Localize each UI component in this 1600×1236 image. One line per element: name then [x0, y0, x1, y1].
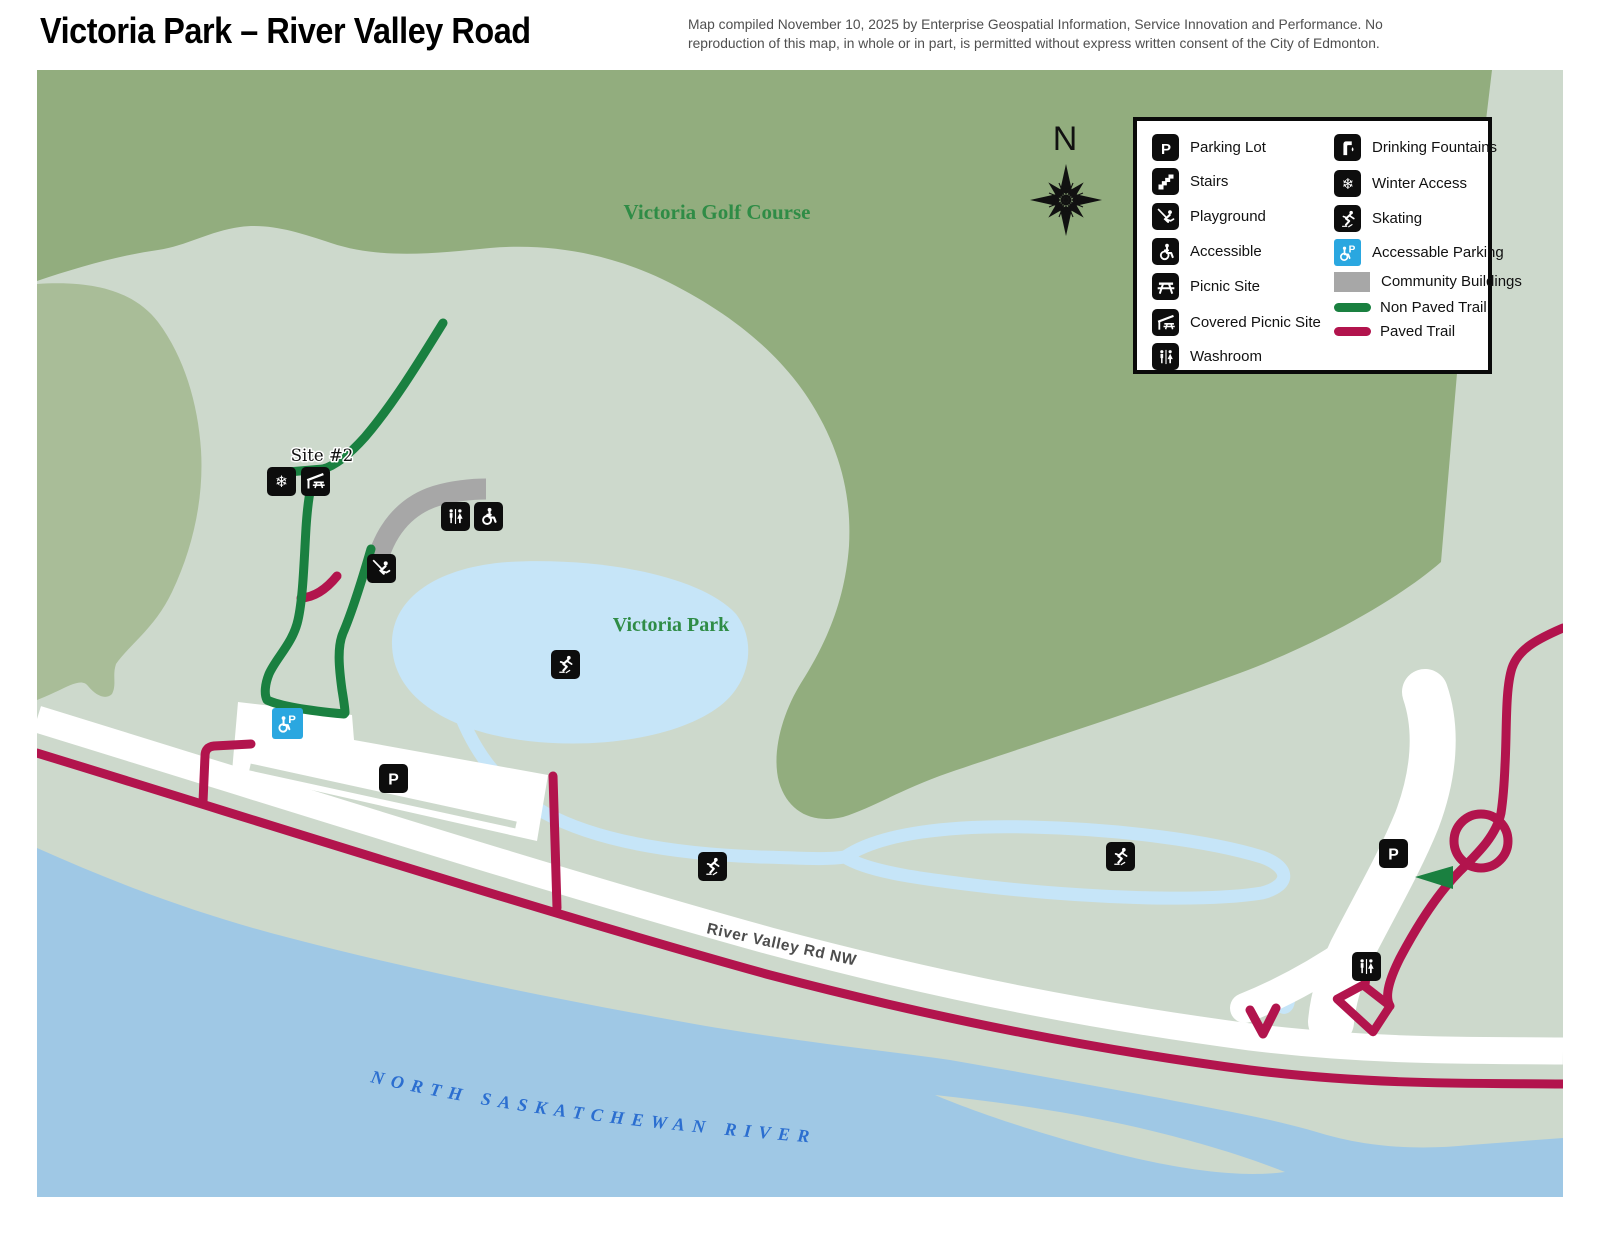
legend-item-picnic-site: Picnic Site: [1152, 273, 1260, 300]
park-label: Victoria Park: [613, 614, 730, 636]
skating-icon: [1106, 842, 1135, 871]
accessible-parking-icon: [272, 708, 303, 739]
legend-label: Accessible: [1190, 243, 1262, 260]
washroom-icon: [1352, 952, 1381, 981]
accessible-parking-icon: [1334, 239, 1361, 266]
legend-label: Accessable Parking: [1372, 244, 1504, 261]
non-paved-trail-swatch: [1334, 303, 1371, 312]
legend-label: Paved Trail: [1380, 323, 1455, 340]
legend-label: Covered Picnic Site: [1190, 314, 1321, 331]
legend-label: Stairs: [1190, 173, 1228, 190]
legend-item-drinking-fountains: Drinking Fountains: [1334, 134, 1497, 161]
stairs-icon: [1152, 168, 1179, 195]
covered-picnic-site-icon: [1152, 309, 1179, 336]
playground-icon: [1152, 203, 1179, 230]
winter-access-icon: [267, 467, 296, 496]
playground-icon: [367, 554, 396, 583]
legend-label: Parking Lot: [1190, 139, 1266, 156]
winter-access-icon: [1334, 170, 1361, 197]
drinking-fountain-icon: [1334, 134, 1361, 161]
legend-item-community-buildings: Community Buildings: [1334, 272, 1522, 292]
skating-icon: [698, 852, 727, 881]
skating-icon: [551, 650, 580, 679]
parking-lot-icon: [379, 764, 408, 793]
attribution-line-2: reproduction of this map, in whole or in…: [688, 35, 1568, 54]
legend-item-skating: Skating: [1334, 205, 1422, 232]
legend-label: Skating: [1372, 210, 1422, 227]
map-attribution: Map compiled November 10, 2025 by Enterp…: [688, 16, 1568, 53]
attribution-line-1: Map compiled November 10, 2025 by Enterp…: [688, 16, 1568, 35]
legend-label: Washroom: [1190, 348, 1262, 365]
covered-picnic-site-icon: [301, 467, 330, 496]
legend-label: Winter Access: [1372, 175, 1467, 192]
community-buildings-swatch: [1334, 272, 1370, 292]
legend-item-washroom: Washroom: [1152, 343, 1262, 370]
site-2-label: Site #2: [291, 446, 354, 465]
map-legend: Parking Lot Stairs Playground Accessible…: [1133, 117, 1492, 374]
legend-item-playground: Playground: [1152, 203, 1266, 230]
legend-item-accessible-parking: Accessable Parking: [1334, 239, 1504, 266]
legend-label: Picnic Site: [1190, 278, 1260, 295]
compass-north-label: N: [1053, 120, 1078, 158]
page-title: Victoria Park – River Valley Road: [40, 10, 531, 52]
golf-course-label: Victoria Golf Course: [623, 200, 810, 224]
legend-item-stairs: Stairs: [1152, 168, 1228, 195]
accessible-icon: [1152, 238, 1179, 265]
legend-item-paved-trail: Paved Trail: [1334, 322, 1455, 340]
legend-label: Playground: [1190, 208, 1266, 225]
map-canvas: N Victoria Golf Course Victoria Park Sit…: [37, 70, 1563, 1197]
skating-icon: [1334, 205, 1361, 232]
parking-lot-icon: [1379, 839, 1408, 868]
paved-trail-swatch: [1334, 327, 1371, 336]
washroom-icon: [1152, 343, 1179, 370]
legend-label: Non Paved Trail: [1380, 299, 1487, 316]
parking-lot-icon: [1152, 134, 1179, 161]
legend-item-parking: Parking Lot: [1152, 134, 1266, 161]
accessible-icon: [474, 502, 503, 531]
legend-label: Drinking Fountains: [1372, 139, 1497, 156]
legend-item-non-paved-trail: Non Paved Trail: [1334, 298, 1487, 316]
picnic-site-icon: [1152, 273, 1179, 300]
legend-label: Community Buildings: [1381, 272, 1522, 292]
washroom-icon: [441, 502, 470, 531]
legend-item-accessible: Accessible: [1152, 238, 1262, 265]
legend-item-covered-picnic-site: Covered Picnic Site: [1152, 309, 1321, 336]
legend-item-winter-access: Winter Access: [1334, 170, 1467, 197]
